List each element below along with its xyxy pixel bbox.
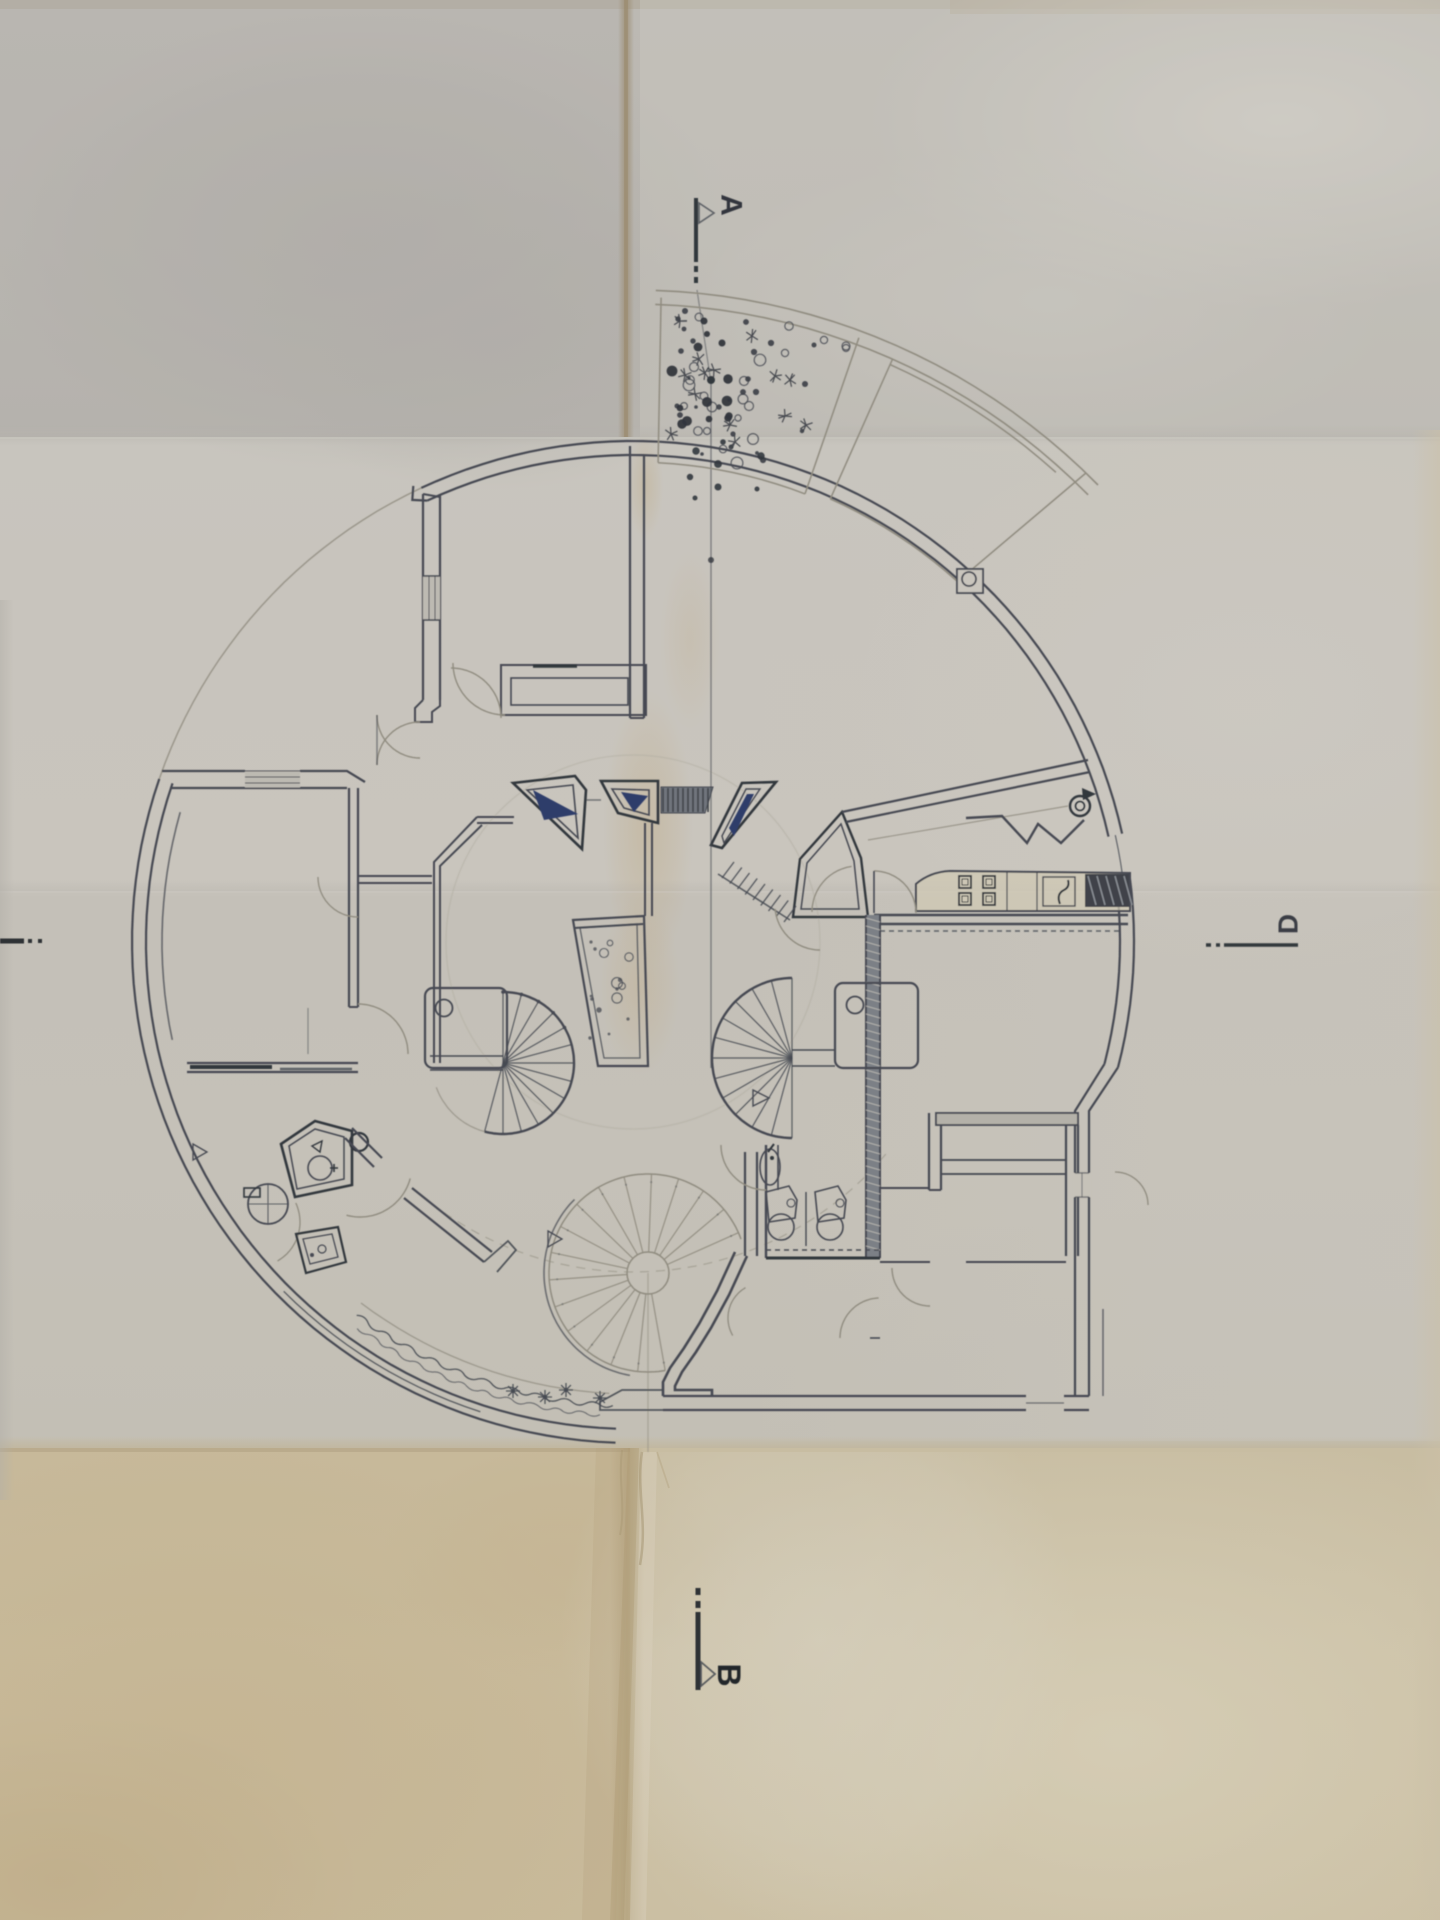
svg-text:B: B <box>711 1663 747 1686</box>
svg-text:A: A <box>715 194 748 216</box>
svg-text:D: D <box>1273 914 1304 934</box>
